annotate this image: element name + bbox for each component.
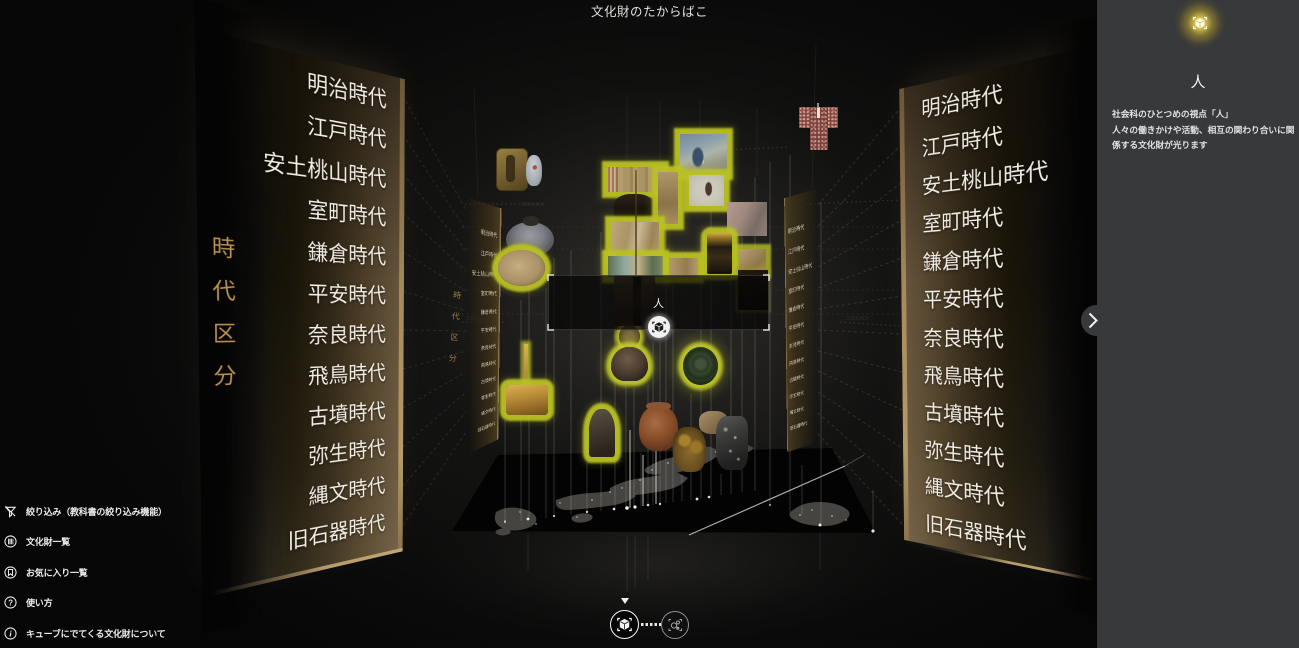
svg-text:i: i [9, 629, 12, 638]
svg-text:?: ? [8, 599, 13, 608]
